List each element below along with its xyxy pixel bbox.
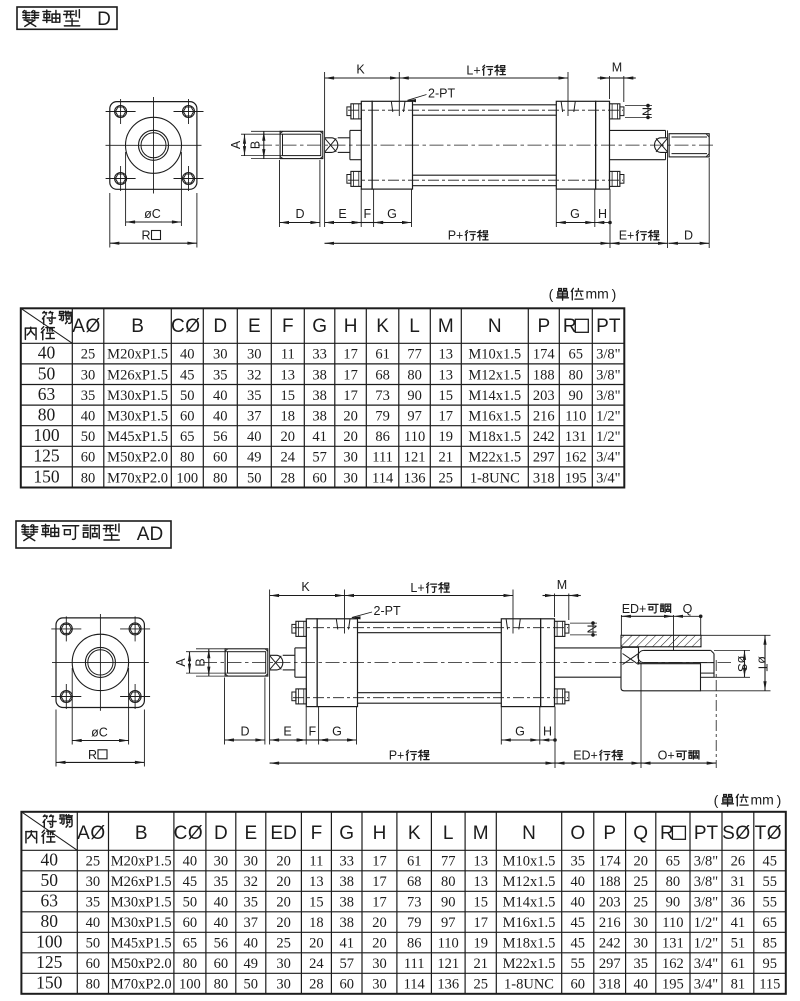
svg-text:18: 18 [281,409,296,425]
svg-text:ED+: ED+ [573,749,598,763]
svg-text:188: 188 [599,874,621,890]
svg-text:55: 55 [571,956,586,972]
svg-text:M20xP1.5: M20xP1.5 [111,854,172,870]
svg-text:45: 45 [180,367,195,383]
svg-text:2-PT: 2-PT [428,87,455,101]
svg-text:90: 90 [569,388,584,404]
svg-text:26: 26 [731,854,746,870]
svg-text:60: 60 [571,977,586,993]
svg-text:3/4": 3/4" [596,450,621,466]
svg-text:M10x1.5: M10x1.5 [468,347,521,363]
svg-text:35: 35 [214,874,229,890]
svg-text:): ) [777,792,782,808]
svg-text:L+: L+ [410,581,424,595]
svg-text:49: 49 [247,450,262,466]
svg-text:114: 114 [404,977,426,993]
svg-text:40: 40 [213,388,228,404]
svg-text:TØ: TØ [755,823,782,844]
svg-text:25: 25 [473,977,488,993]
svg-text:162: 162 [565,450,587,466]
svg-text:K: K [356,63,365,77]
svg-text:G: G [332,725,342,739]
svg-text:195: 195 [662,977,684,993]
svg-text:30: 30 [343,470,358,486]
svg-text:242: 242 [599,936,621,952]
svg-text:41: 41 [339,936,354,952]
svg-text:17: 17 [343,367,358,383]
svg-text:80: 80 [86,977,101,993]
svg-text:20: 20 [343,409,358,425]
svg-text:M18x1.5: M18x1.5 [468,429,521,445]
svg-text:50: 50 [180,388,195,404]
svg-text:AD: AD [137,524,163,545]
svg-text:1/2": 1/2" [596,429,621,445]
svg-text:17: 17 [343,347,358,363]
svg-text:30: 30 [247,347,262,363]
svg-text:216: 216 [533,409,555,425]
svg-text:N: N [584,624,598,633]
svg-text:40: 40 [41,850,59,870]
svg-text:110: 110 [565,409,586,425]
svg-text:35: 35 [247,388,262,404]
svg-text:110: 110 [404,429,425,445]
svg-text:H: H [543,725,552,739]
svg-text:100: 100 [36,932,63,952]
svg-text:35: 35 [213,367,228,383]
svg-text:K: K [408,823,421,844]
svg-text:68: 68 [375,367,390,383]
svg-text:G: G [387,207,397,221]
svg-text:PT: PT [694,823,719,844]
svg-text:77: 77 [407,347,422,363]
svg-text:3/8": 3/8" [694,895,719,911]
svg-text:65: 65 [763,915,778,931]
svg-text:13: 13 [439,347,454,363]
svg-text:121: 121 [437,956,459,972]
svg-text:24: 24 [281,450,296,466]
svg-text:40: 40 [571,895,586,911]
svg-text:M50xP2.0: M50xP2.0 [107,450,168,466]
svg-text:38: 38 [312,388,327,404]
svg-text:M30xP1.5: M30xP1.5 [107,409,168,425]
svg-text:65: 65 [183,936,198,952]
svg-text:øC: øC [91,726,108,740]
svg-text:195: 195 [565,470,587,486]
svg-text:60: 60 [339,977,354,993]
svg-text:125: 125 [33,446,60,466]
svg-text:80: 80 [213,470,228,486]
svg-text:20: 20 [343,429,358,445]
svg-text:M30xP1.5: M30xP1.5 [107,388,168,404]
svg-text:F: F [282,316,294,337]
svg-text:E: E [248,316,261,337]
svg-text:57: 57 [312,450,327,466]
svg-text:90: 90 [407,388,422,404]
svg-text:N: N [522,823,536,844]
svg-text:80: 80 [214,977,229,993]
svg-text:60: 60 [86,956,101,972]
svg-text:18: 18 [309,915,324,931]
svg-text:G: G [515,725,525,739]
svg-text:øS: øS [735,656,749,672]
svg-text:37: 37 [247,409,262,425]
svg-text:3/4": 3/4" [596,470,621,486]
svg-text:60: 60 [81,450,96,466]
svg-text:97: 97 [441,915,456,931]
svg-text:D: D [295,207,304,221]
svg-text:79: 79 [407,915,422,931]
svg-text:30: 30 [633,936,648,952]
svg-text:21: 21 [439,450,454,466]
svg-text:1/2": 1/2" [596,409,621,425]
svg-text:11: 11 [309,854,323,870]
svg-text:30: 30 [213,347,228,363]
svg-text:13: 13 [473,854,488,870]
svg-text:45: 45 [571,915,586,931]
svg-text:19: 19 [473,936,488,952]
svg-text:32: 32 [244,874,259,890]
svg-text:63: 63 [41,891,59,911]
svg-text:H: H [598,207,607,221]
svg-text:86: 86 [375,429,390,445]
svg-text:50: 50 [244,977,259,993]
svg-text:M22x1.5: M22x1.5 [468,450,521,466]
svg-text:13: 13 [439,367,454,383]
svg-text:131: 131 [565,429,587,445]
svg-text:61: 61 [407,854,422,870]
svg-text:80: 80 [41,911,59,931]
svg-text:M16x1.5: M16x1.5 [468,409,521,425]
svg-text:M: M [473,823,489,844]
svg-text:50: 50 [247,470,262,486]
svg-text:36: 36 [731,895,746,911]
svg-text:30: 30 [633,915,648,931]
svg-text:E: E [244,823,257,844]
svg-text:55: 55 [763,874,778,890]
svg-text:Q: Q [683,602,693,616]
svg-text:115: 115 [759,977,780,993]
svg-text:M12x1.5: M12x1.5 [468,367,521,383]
svg-text:20: 20 [276,915,291,931]
svg-text:20: 20 [276,895,291,911]
svg-text:45: 45 [183,874,198,890]
svg-text:60: 60 [183,915,198,931]
svg-text:D: D [214,823,228,844]
svg-text:M16x1.5: M16x1.5 [503,915,556,931]
svg-text:M50xP2.0: M50xP2.0 [111,956,172,972]
svg-text:25: 25 [633,895,648,911]
svg-text:40: 40 [81,409,96,425]
svg-text:R: R [88,748,97,762]
svg-text:Q: Q [633,823,648,844]
svg-text:136: 136 [437,977,459,993]
svg-text:D: D [240,725,249,739]
svg-text:35: 35 [244,895,259,911]
svg-text:55: 55 [763,895,778,911]
svg-text:15: 15 [439,388,454,404]
svg-text:F: F [311,823,323,844]
svg-text:M10x1.5: M10x1.5 [503,854,556,870]
svg-text:80: 80 [407,367,422,383]
svg-text:1/2": 1/2" [694,915,719,931]
svg-text:60: 60 [180,409,195,425]
svg-text:20: 20 [372,915,387,931]
svg-text:15: 15 [473,895,488,911]
svg-text:56: 56 [213,429,228,445]
svg-text:M20xP1.5: M20xP1.5 [107,347,168,363]
svg-text:73: 73 [375,388,390,404]
svg-text:85: 85 [763,936,778,952]
svg-text:B: B [131,316,144,337]
svg-text:AØ: AØ [72,316,100,337]
svg-text:50: 50 [183,895,198,911]
svg-text:80: 80 [441,874,456,890]
svg-text:79: 79 [375,409,390,425]
svg-text:G: G [339,823,354,844]
svg-text:51: 51 [731,936,746,952]
svg-text:20: 20 [276,874,291,890]
svg-text:216: 216 [599,915,621,931]
svg-text:A: A [229,140,243,149]
svg-text:28: 28 [309,977,324,993]
svg-text:203: 203 [533,388,555,404]
svg-text:30: 30 [86,874,101,890]
svg-text:45: 45 [571,936,586,952]
svg-text:3/4": 3/4" [694,977,719,993]
svg-text:136: 136 [404,470,426,486]
svg-text:A: A [174,658,188,667]
svg-text:M70xP2.0: M70xP2.0 [107,470,168,486]
svg-text:80: 80 [666,874,681,890]
svg-text:20: 20 [372,936,387,952]
svg-text:3/8": 3/8" [694,854,719,870]
svg-text:38: 38 [339,915,354,931]
svg-text:86: 86 [407,936,422,952]
svg-text:1-8UNC: 1-8UNC [470,470,520,486]
svg-text:G: G [312,316,327,337]
svg-text:73: 73 [407,895,422,911]
svg-text:297: 297 [599,956,621,972]
svg-text:øT: øT [756,656,770,672]
svg-text:32: 32 [247,367,262,383]
svg-text:40: 40 [183,854,198,870]
svg-text:111: 111 [372,450,393,466]
svg-text:2-PT: 2-PT [374,604,401,618]
svg-text:K: K [301,580,310,594]
svg-text:100: 100 [179,977,201,993]
svg-text:17: 17 [372,874,387,890]
svg-text:17: 17 [372,895,387,911]
svg-text:30: 30 [372,977,387,993]
svg-text:30: 30 [214,854,229,870]
svg-text:318: 318 [533,470,555,486]
svg-text:60: 60 [213,450,228,466]
svg-text:(: ( [714,792,719,808]
svg-text:M30xP1.5: M30xP1.5 [111,915,172,931]
svg-text:56: 56 [214,936,229,952]
svg-text:242: 242 [533,429,555,445]
svg-text:97: 97 [407,409,422,425]
svg-text:41: 41 [731,915,746,931]
svg-text:125: 125 [36,952,63,972]
svg-text:40: 40 [571,874,586,890]
svg-text:3/4": 3/4" [694,956,719,972]
svg-text:318: 318 [599,977,621,993]
svg-text:80: 80 [38,405,56,425]
svg-text:40: 40 [213,409,228,425]
svg-text:M26xP1.5: M26xP1.5 [107,367,168,383]
svg-text:17: 17 [439,409,454,425]
svg-text:M30xP1.5: M30xP1.5 [111,895,172,911]
svg-text:O+: O+ [658,749,675,763]
svg-text:150: 150 [36,973,63,993]
svg-text:50: 50 [86,936,101,952]
svg-text:28: 28 [281,470,296,486]
svg-text:M12x1.5: M12x1.5 [503,874,556,890]
svg-text:80: 80 [183,956,198,972]
svg-text:25: 25 [276,936,291,952]
svg-text:41: 41 [312,429,327,445]
svg-text:80: 80 [180,450,195,466]
svg-text:65: 65 [666,854,681,870]
svg-text:30: 30 [343,450,358,466]
svg-text:40: 40 [38,343,56,363]
svg-text:30: 30 [372,956,387,972]
svg-text:M70xP2.0: M70xP2.0 [111,977,172,993]
svg-text:35: 35 [633,956,648,972]
svg-text:61: 61 [375,347,390,363]
svg-text:60: 60 [214,956,229,972]
svg-text:203: 203 [599,895,621,911]
svg-text:33: 33 [339,854,354,870]
svg-text:P+: P+ [448,229,464,243]
svg-text:20: 20 [309,936,324,952]
svg-text:11: 11 [281,347,295,363]
svg-text:15: 15 [281,388,296,404]
svg-text:1-8UNC: 1-8UNC [504,977,554,993]
svg-text:174: 174 [599,854,622,870]
svg-text:M14x1.5: M14x1.5 [468,388,521,404]
svg-text:M45xP1.5: M45xP1.5 [107,429,168,445]
svg-text:77: 77 [441,854,456,870]
svg-text:30: 30 [81,367,96,383]
svg-text:50: 50 [81,429,96,445]
svg-text:38: 38 [312,367,327,383]
svg-text:M: M [438,316,454,337]
svg-text:35: 35 [571,854,586,870]
svg-text:111: 111 [404,956,425,972]
svg-text:65: 65 [569,347,584,363]
svg-text:60: 60 [312,470,327,486]
svg-text:ED+: ED+ [622,602,647,616]
svg-text:35: 35 [86,895,101,911]
svg-text:80: 80 [81,470,96,486]
svg-text:P: P [603,823,616,844]
svg-text:21: 21 [473,956,488,972]
svg-text:R: R [660,823,674,844]
svg-text:30: 30 [244,854,259,870]
svg-text:R: R [141,229,150,243]
svg-text:40: 40 [214,895,229,911]
svg-text:G: G [570,207,580,221]
svg-text:N: N [488,316,502,337]
svg-text:CØ: CØ [174,823,204,844]
svg-text:24: 24 [309,956,324,972]
svg-text:mm: mm [751,792,774,808]
svg-text:25: 25 [439,470,454,486]
svg-text:3/8": 3/8" [596,367,621,383]
svg-text:40: 40 [244,936,259,952]
svg-text:D: D [97,9,111,30]
svg-text:CØ: CØ [171,316,201,337]
svg-text:110: 110 [662,915,683,931]
svg-text:40: 40 [633,977,648,993]
svg-text:50: 50 [38,363,56,383]
svg-text:131: 131 [662,936,684,952]
svg-text:114: 114 [372,470,394,486]
svg-text:25: 25 [86,854,101,870]
svg-text:188: 188 [533,367,555,383]
svg-text:F: F [363,207,371,221]
svg-text:): ) [612,286,617,302]
svg-text:20: 20 [281,429,296,445]
svg-text:50: 50 [41,870,59,890]
svg-text:L: L [443,823,454,844]
svg-text:65: 65 [180,429,195,445]
svg-text:13: 13 [309,874,324,890]
svg-text:121: 121 [404,450,426,466]
svg-text:95: 95 [763,956,778,972]
svg-text:40: 40 [180,347,195,363]
svg-text:68: 68 [407,874,422,890]
svg-text:O: O [570,823,585,844]
svg-text:100: 100 [176,470,198,486]
svg-text:297: 297 [533,450,555,466]
svg-text:B: B [135,823,148,844]
svg-text:31: 31 [731,874,746,890]
svg-text:D: D [213,316,227,337]
svg-text:37: 37 [244,915,259,931]
svg-text:38: 38 [312,409,327,425]
svg-text:K: K [376,316,389,337]
svg-text:13: 13 [281,367,296,383]
svg-text:61: 61 [731,956,746,972]
svg-text:mm: mm [586,286,609,302]
svg-text:M: M [557,578,567,592]
svg-text:90: 90 [666,895,681,911]
svg-text:19: 19 [439,429,454,445]
svg-text:13: 13 [473,874,488,890]
svg-text:E: E [338,207,346,221]
svg-text:H: H [373,823,387,844]
svg-text:100: 100 [33,425,60,445]
svg-text:3/8": 3/8" [596,388,621,404]
svg-text:40: 40 [214,915,229,931]
svg-text:3/8": 3/8" [596,347,621,363]
svg-text:ED: ED [270,823,296,844]
svg-text:30: 30 [276,956,291,972]
svg-text:M26xP1.5: M26xP1.5 [111,874,172,890]
svg-text:63: 63 [38,384,56,404]
svg-text:90: 90 [441,895,456,911]
svg-text:D: D [684,229,693,243]
svg-text:M45xP1.5: M45xP1.5 [111,936,172,952]
svg-text:162: 162 [662,956,684,972]
svg-text:33: 33 [312,347,327,363]
svg-text:20: 20 [276,854,291,870]
svg-text:M: M [612,61,622,75]
svg-text:M22x1.5: M22x1.5 [503,956,556,972]
